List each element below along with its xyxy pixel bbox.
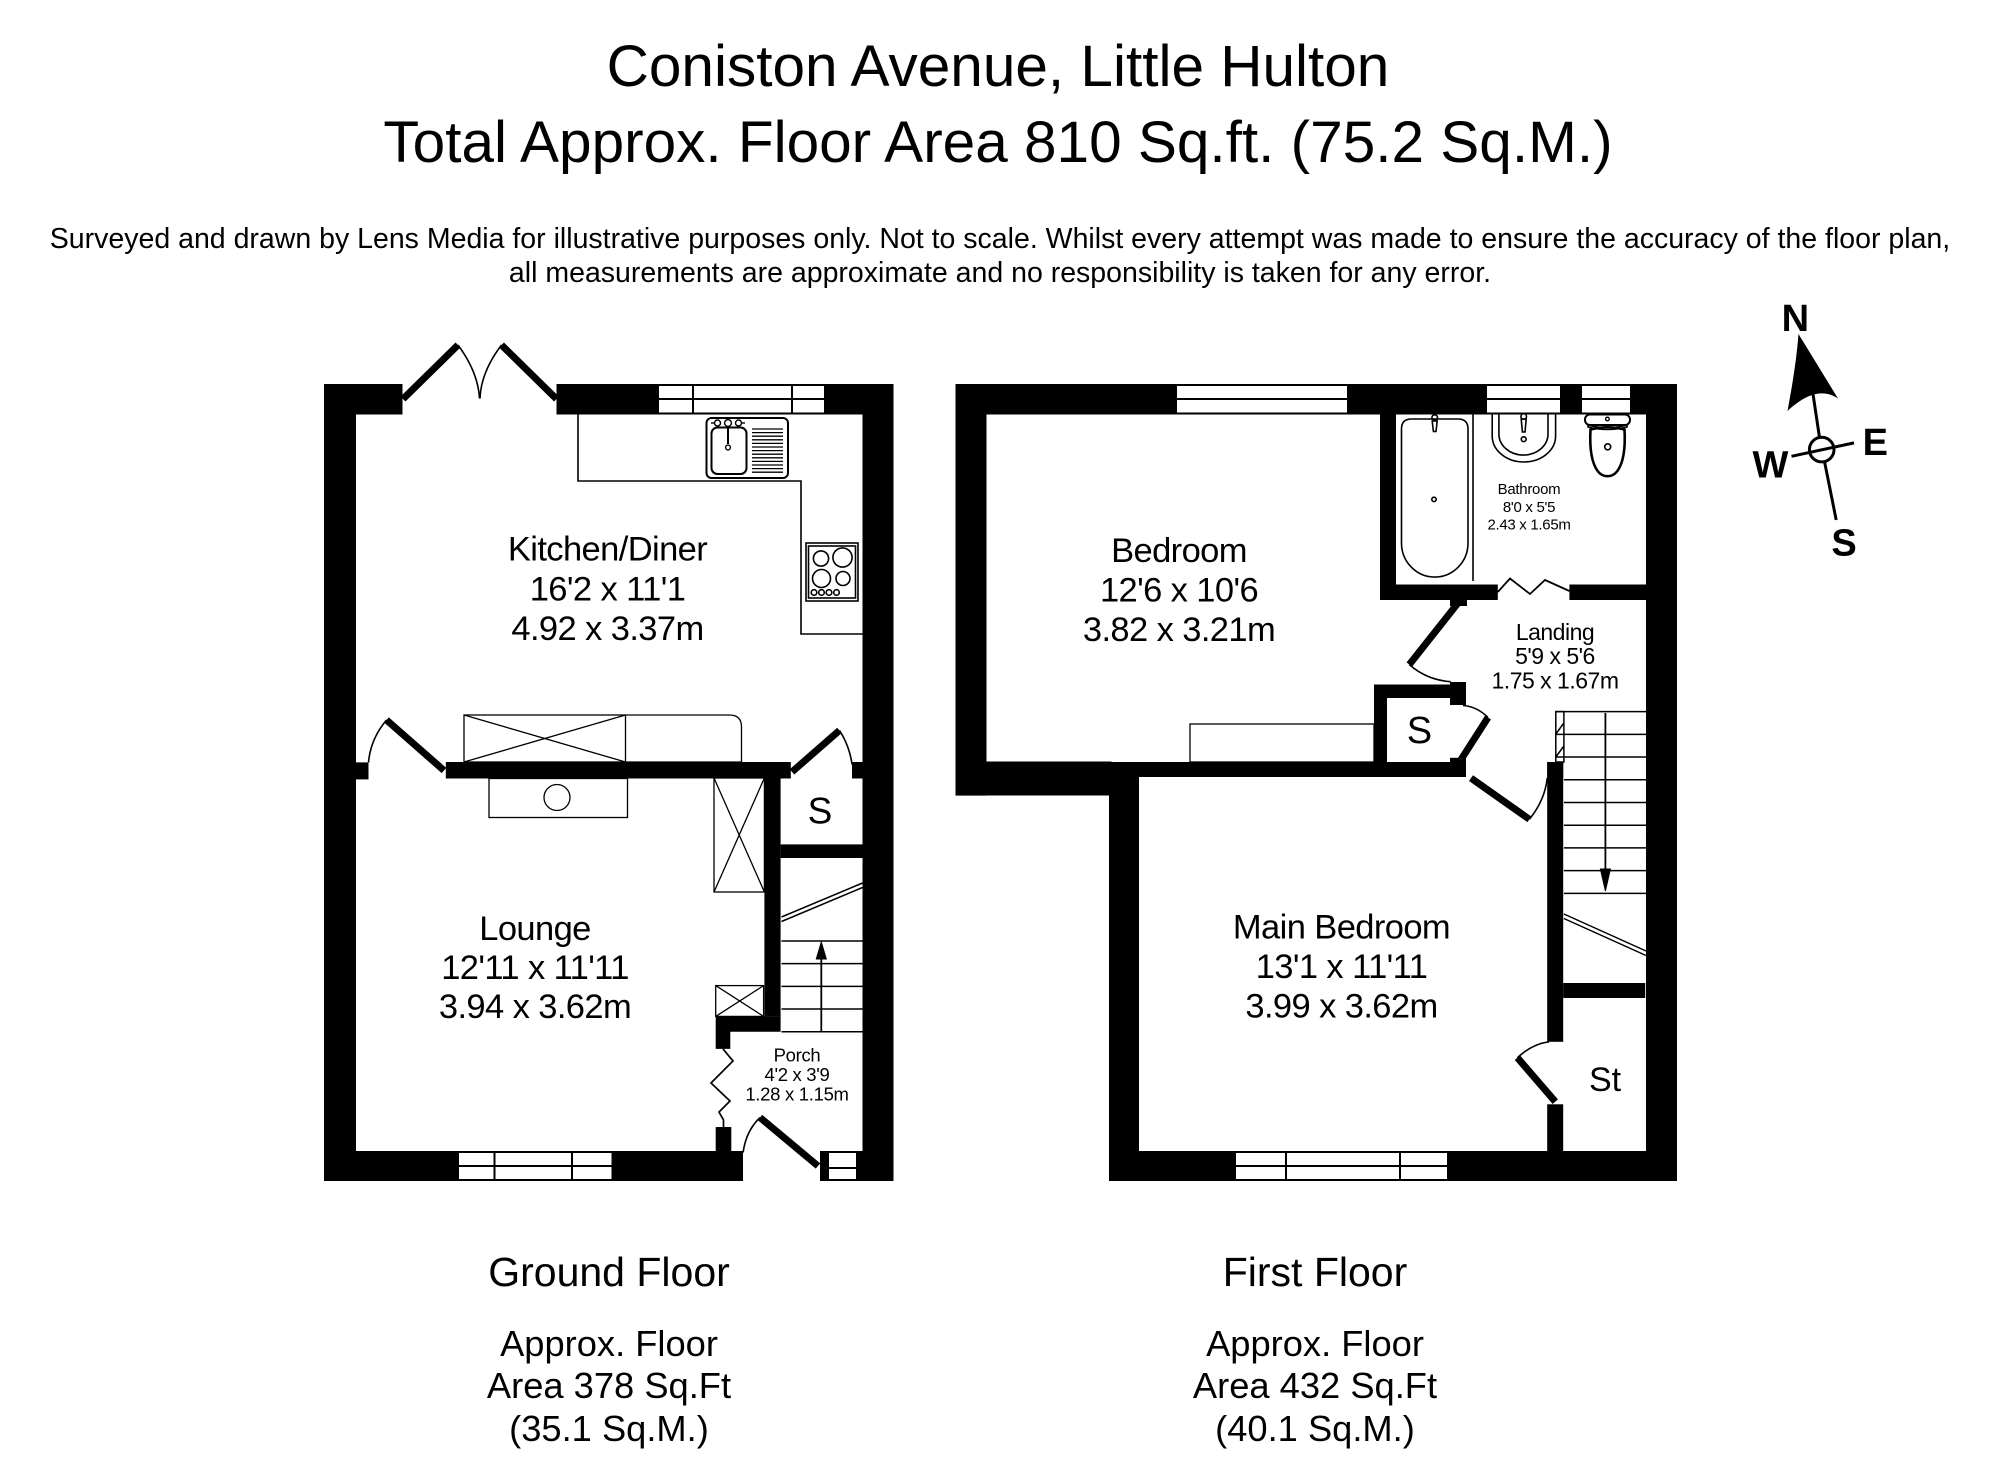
svg-text:12'6 x 10'6: 12'6 x 10'6: [1100, 572, 1258, 610]
svg-text:Bathroom: Bathroom: [1498, 481, 1561, 498]
svg-text:S: S: [1407, 710, 1432, 752]
svg-text:all measurements are approxima: all measurements are approximate and no …: [509, 257, 1491, 289]
svg-text:(40.1 Sq.M.): (40.1 Sq.M.): [1215, 1408, 1415, 1449]
svg-text:S: S: [1831, 523, 1856, 565]
svg-text:Kitchen/Diner: Kitchen/Diner: [508, 531, 707, 569]
svg-text:First Floor: First Floor: [1223, 1249, 1408, 1295]
svg-text:Main Bedroom: Main Bedroom: [1233, 909, 1450, 947]
svg-text:W: W: [1752, 445, 1788, 487]
svg-text:3.94 x 3.62m: 3.94 x 3.62m: [439, 988, 631, 1026]
svg-text:Approx. Floor: Approx. Floor: [500, 1323, 718, 1364]
svg-text:12'11 x 11'11: 12'11 x 11'11: [441, 949, 629, 987]
svg-text:Landing: Landing: [1516, 619, 1594, 645]
svg-text:Coniston Avenue, Little Hulton: Coniston Avenue, Little Hulton: [607, 34, 1390, 99]
svg-text:Total Approx. Floor Area 810 S: Total Approx. Floor Area 810 Sq.ft. (75.…: [383, 110, 1612, 175]
svg-text:Area 432 Sq.Ft: Area 432 Sq.Ft: [1193, 1365, 1437, 1406]
svg-text:N: N: [1782, 298, 1809, 340]
svg-text:2.43 x 1.65m: 2.43 x 1.65m: [1487, 517, 1570, 534]
svg-text:Bedroom: Bedroom: [1111, 532, 1247, 570]
svg-text:S: S: [808, 791, 833, 832]
svg-text:Approx. Floor: Approx. Floor: [1206, 1323, 1424, 1364]
svg-text:4'2 x 3'9: 4'2 x 3'9: [764, 1064, 829, 1085]
svg-text:E: E: [1863, 422, 1888, 464]
svg-text:13'1 x 11'11: 13'1 x 11'11: [1256, 948, 1428, 986]
svg-text:Porch: Porch: [774, 1045, 821, 1066]
svg-text:3.82 x 3.21m: 3.82 x 3.21m: [1083, 611, 1275, 649]
svg-text:3.99 x 3.62m: 3.99 x 3.62m: [1245, 988, 1437, 1026]
svg-text:4.92 x 3.37m: 4.92 x 3.37m: [511, 610, 703, 648]
svg-text:1.75 x 1.67m: 1.75 x 1.67m: [1492, 667, 1619, 693]
svg-text:Surveyed and drawn by Lens Med: Surveyed and drawn by Lens Media for ill…: [50, 223, 1950, 255]
svg-text:St: St: [1589, 1061, 1622, 1099]
svg-text:5'9 x 5'6: 5'9 x 5'6: [1515, 643, 1595, 669]
svg-text:Lounge: Lounge: [479, 910, 591, 948]
svg-text:(35.1 Sq.M.): (35.1 Sq.M.): [509, 1408, 709, 1449]
svg-text:Area 378 Sq.Ft: Area 378 Sq.Ft: [487, 1365, 731, 1406]
svg-text:Ground Floor: Ground Floor: [488, 1249, 730, 1295]
svg-text:1.28 x 1.15m: 1.28 x 1.15m: [745, 1084, 848, 1105]
svg-text:16'2 x 11'1: 16'2 x 11'1: [530, 571, 686, 609]
svg-text:8'0 x 5'5: 8'0 x 5'5: [1503, 499, 1555, 516]
